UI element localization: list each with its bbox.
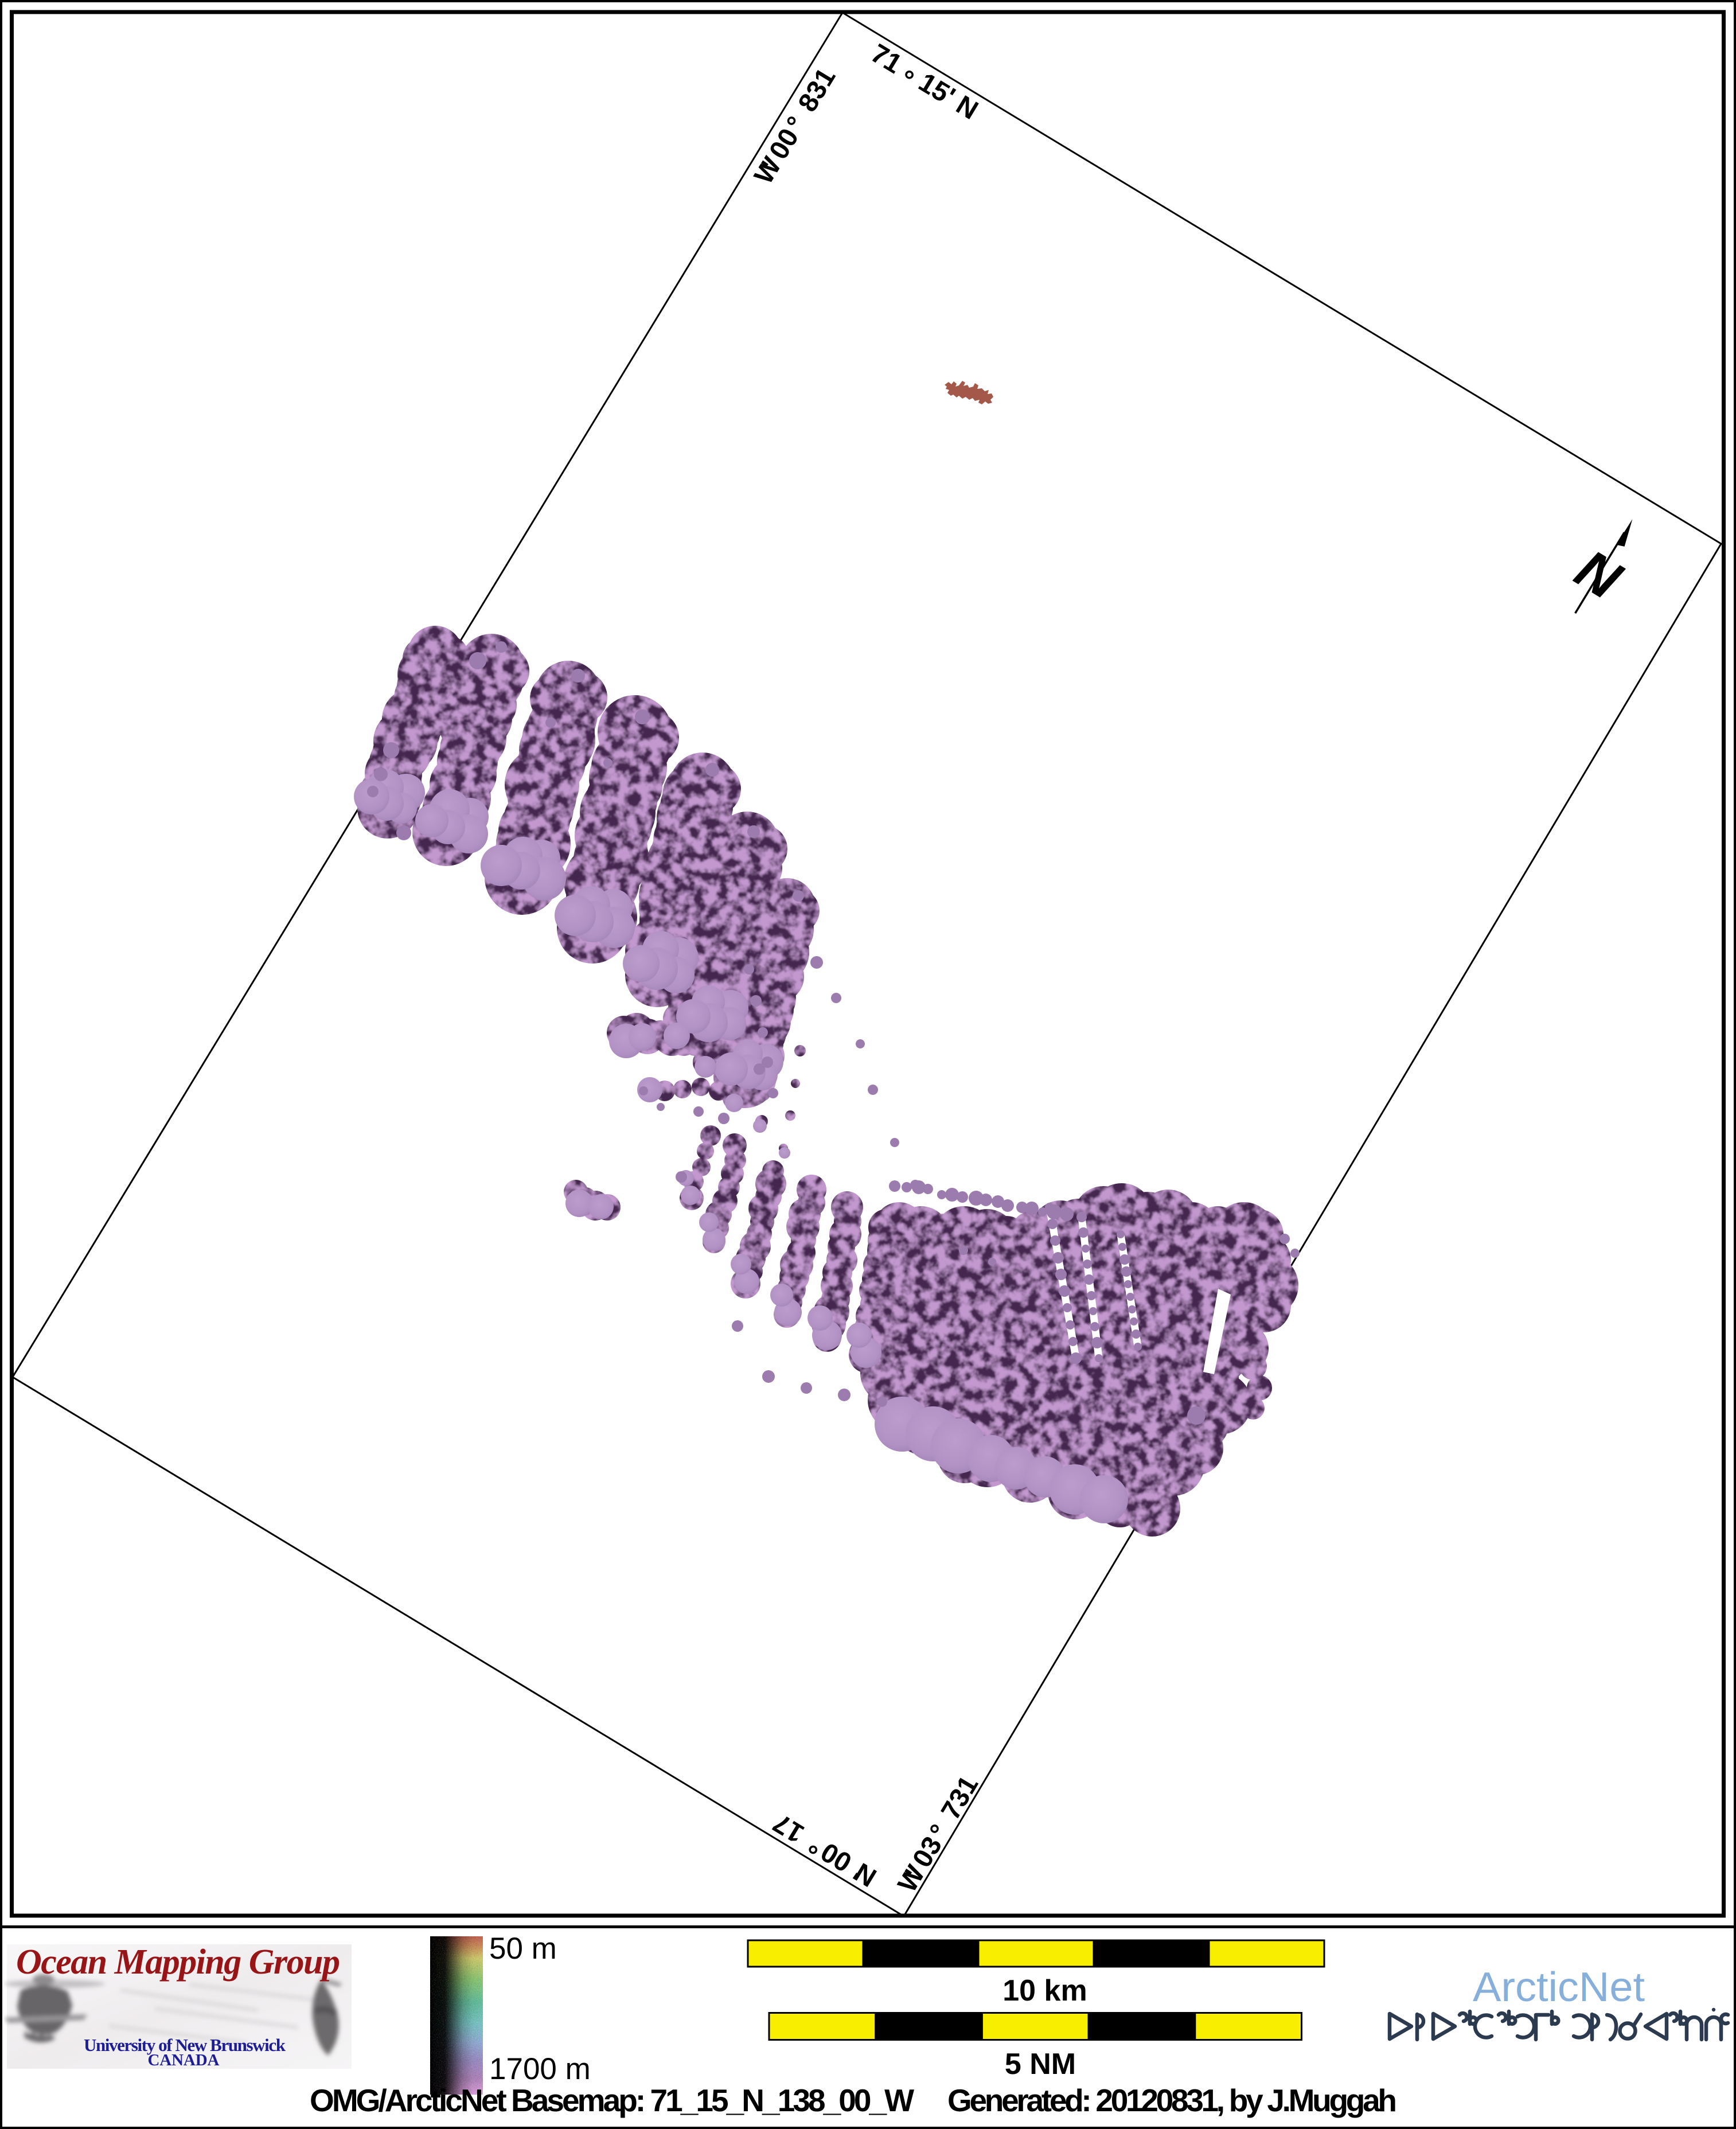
svg-text:OMG/ArcticNet Basemap: 71_15_N: OMG/ArcticNet Basemap: 71_15_N_138_00_W [310, 2083, 914, 2118]
svg-text:50 m: 50 m [489, 1932, 557, 1966]
svg-text:ArcticNet: ArcticNet [1473, 1964, 1645, 2010]
svg-text:1700 m: 1700 m [489, 2052, 591, 2086]
svg-text:Generated: 20120831, by J.Mugg: Generated: 20120831, by J.Muggah [947, 2083, 1397, 2118]
svg-text:5 NM: 5 NM [1005, 2048, 1076, 2081]
svg-text:Ocean Mapping Group: Ocean Mapping Group [16, 1943, 340, 1982]
svg-text:CANADA: CANADA [148, 2051, 220, 2069]
svg-text:10 km: 10 km [1002, 1974, 1087, 2007]
